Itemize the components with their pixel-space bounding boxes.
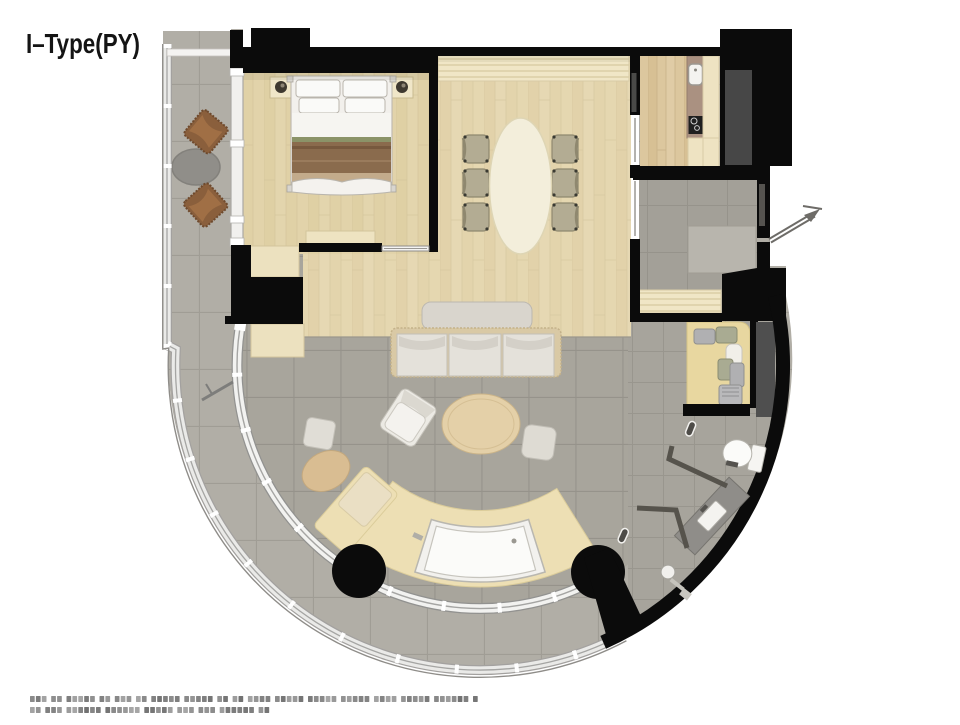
svg-text:I–Type(PY): I–Type(PY) — [26, 28, 140, 59]
